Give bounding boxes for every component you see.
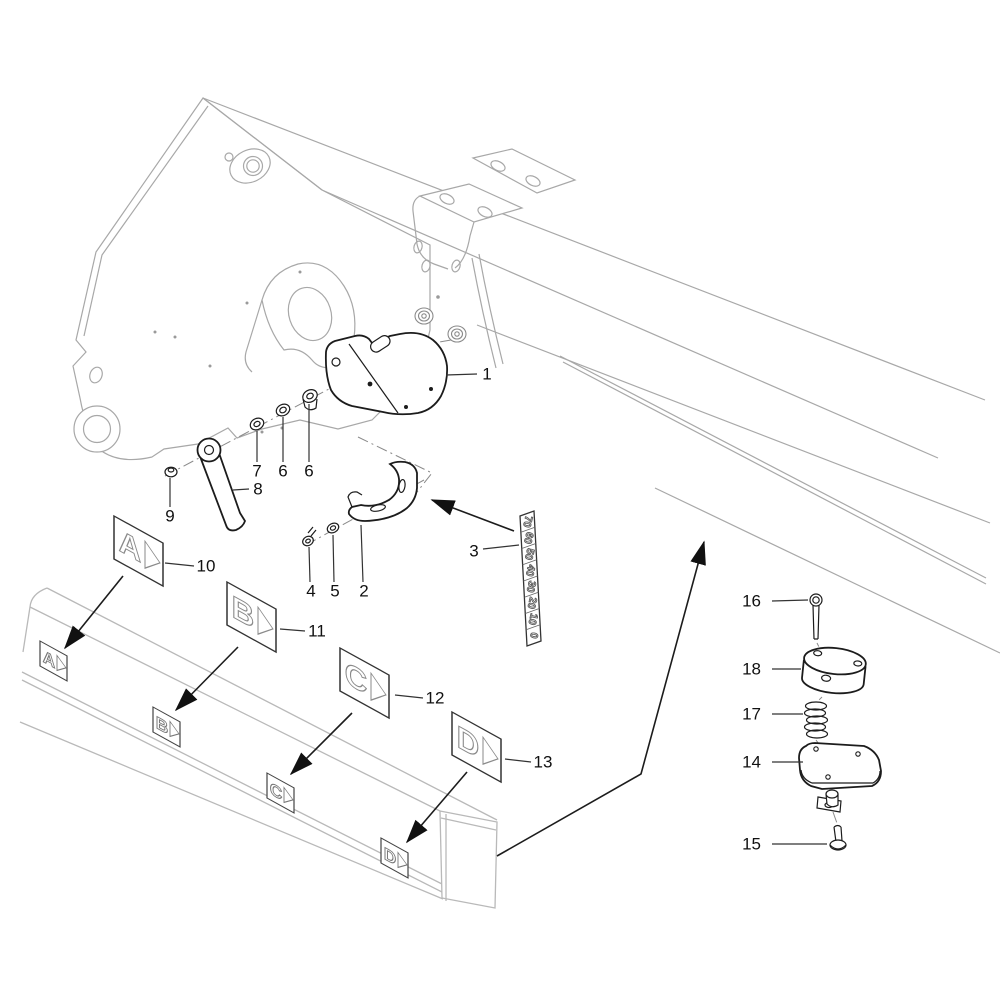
callout-12: 12 bbox=[426, 689, 445, 708]
callout-14: 14 bbox=[742, 753, 761, 772]
part-2-pointer-arrow bbox=[432, 500, 514, 531]
callout-8: 8 bbox=[253, 480, 262, 499]
callout-6b: 6 bbox=[304, 462, 313, 481]
callout-3: 3 bbox=[469, 542, 478, 561]
boom-head bbox=[73, 98, 575, 460]
callout-17: 17 bbox=[742, 705, 761, 724]
callout-7: 7 bbox=[252, 462, 261, 481]
callout-15: 15 bbox=[742, 835, 761, 854]
callout-13: 13 bbox=[534, 753, 553, 772]
callout-10: 10 bbox=[197, 557, 216, 576]
part-8-lock-lever bbox=[198, 439, 246, 531]
decal-d-small: D bbox=[381, 838, 408, 878]
decal-c-small: C bbox=[267, 773, 294, 813]
pad-assembly bbox=[799, 594, 881, 850]
callout-5: 5 bbox=[330, 582, 339, 601]
weld-stud bbox=[415, 308, 433, 324]
decal-c-arrow bbox=[291, 713, 352, 774]
callout-11: 11 bbox=[308, 622, 326, 641]
decal-d-large: D bbox=[452, 712, 501, 782]
decal-b-arrow bbox=[176, 647, 238, 710]
decal-b-large: B bbox=[227, 582, 276, 652]
decal-c-large: C bbox=[340, 648, 389, 718]
callout-1: 1 bbox=[482, 365, 491, 384]
mounting-strap-plates bbox=[413, 149, 575, 273]
part-4-bolt bbox=[301, 527, 316, 548]
callout-2: 2 bbox=[359, 582, 368, 601]
decal-a-large: A bbox=[114, 516, 163, 586]
decal-a-small: A bbox=[40, 641, 67, 681]
parts-diagram-page: 70 60 50 40 30 20 10 0 A B C D bbox=[0, 0, 1000, 1000]
part-16-bolt bbox=[810, 594, 822, 639]
part-17-spring bbox=[805, 702, 828, 738]
part-2-wear-pad bbox=[348, 462, 417, 521]
decal-b-small: B bbox=[153, 707, 180, 747]
callout-4: 4 bbox=[306, 582, 315, 601]
part-14-pad-bracket bbox=[799, 743, 881, 812]
part-9-nut bbox=[165, 467, 177, 477]
callout-6a: 6 bbox=[278, 462, 287, 481]
tube-end-face bbox=[440, 811, 497, 908]
scale-decal-strip: 70 60 50 40 30 20 10 0 bbox=[520, 511, 541, 646]
callout-16: 16 bbox=[742, 592, 761, 611]
part-15-bolt bbox=[830, 826, 846, 851]
callout-9: 9 bbox=[165, 507, 174, 526]
decal-a-arrow bbox=[65, 576, 123, 648]
exploded-view-diagram: 70 60 50 40 30 20 10 0 A B C D bbox=[0, 0, 1000, 1000]
part-18-cap bbox=[801, 645, 867, 696]
callout-18: 18 bbox=[742, 660, 761, 679]
part-1-shield-plate bbox=[326, 333, 447, 414]
